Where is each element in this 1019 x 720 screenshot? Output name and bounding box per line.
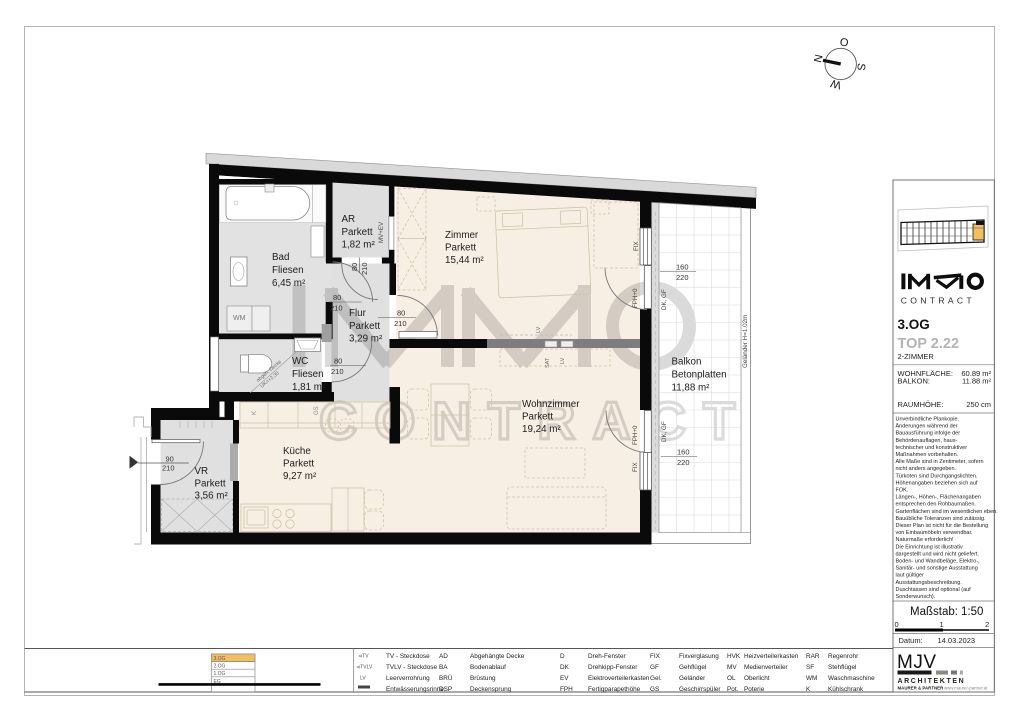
svg-text:1.OG: 1.OG xyxy=(214,671,226,677)
svg-text:Pot.: Pot. xyxy=(727,686,739,693)
svg-text:AD: AD xyxy=(439,653,448,660)
svg-text:LV: LV xyxy=(360,676,366,682)
svg-text:Bodenablauf: Bodenablauf xyxy=(470,664,506,671)
svg-text:SF: SF xyxy=(806,664,814,671)
svg-text:WM: WM xyxy=(806,675,817,682)
svg-text:220: 220 xyxy=(676,273,689,282)
svg-text:MAURER & PARTNER: MAURER & PARTNER xyxy=(898,686,945,691)
svg-text:TVLV - Steckdose: TVLV - Steckdose xyxy=(386,664,437,671)
svg-text:entsprechen den Rohbaumaßen.: entsprechen den Rohbaumaßen. xyxy=(896,502,977,508)
svg-text:Dieser Plan ist nicht für die: Dieser Plan ist nicht für die Bestellung xyxy=(896,523,989,529)
svg-text:⊲TVLV: ⊲TVLV xyxy=(356,665,373,671)
svg-text:Bauübliche Toleranzen sind zul: Bauübliche Toleranzen sind zulässig. xyxy=(896,516,987,522)
svg-text:Poterie: Poterie xyxy=(744,686,765,693)
svg-text:250 cm: 250 cm xyxy=(966,400,991,409)
svg-text:DK: DK xyxy=(560,664,570,671)
svg-text:11.88 m²: 11.88 m² xyxy=(962,377,992,386)
svg-text:210: 210 xyxy=(360,262,369,275)
svg-text:Regenrohr: Regenrohr xyxy=(828,653,859,660)
svg-text:GS: GS xyxy=(314,406,320,415)
svg-text:DSP: DSP xyxy=(439,686,452,693)
svg-text:Bauausführung infolge der: Bauausführung infolge der xyxy=(896,431,961,437)
svg-text:Heizverteilerkasten: Heizverteilerkasten xyxy=(744,653,799,660)
svg-text:LV: LV xyxy=(560,357,566,364)
svg-text:Fertigparapethöhe: Fertigparapethöhe xyxy=(588,686,641,693)
svg-text:Wohnzimmer: Wohnzimmer xyxy=(522,399,580,410)
svg-text:Sanitär- und sonstige Ausstatt: Sanitär- und sonstige Ausstattung xyxy=(896,566,978,572)
svg-text:210: 210 xyxy=(394,319,407,328)
svg-text:Dreh-Fenster: Dreh-Fenster xyxy=(588,653,627,660)
svg-text:2-ZIMMER: 2-ZIMMER xyxy=(898,352,935,361)
svg-text:FPH: FPH xyxy=(560,686,573,693)
svg-text:Waschmaschine: Waschmaschine xyxy=(828,675,875,682)
svg-text:MV: MV xyxy=(727,664,737,671)
svg-text:MJV: MJV xyxy=(897,652,937,673)
svg-text:Betonplatten: Betonplatten xyxy=(672,370,727,381)
svg-text:Parkett: Parkett xyxy=(522,412,553,423)
svg-text:Parkett: Parkett xyxy=(283,459,314,470)
svg-text:Längen-, Höhen-, Flächenangabe: Längen-, Höhen-, Flächenangaben xyxy=(896,495,981,501)
svg-text:90: 90 xyxy=(166,455,174,464)
svg-text:Fliesen: Fliesen xyxy=(272,265,304,276)
svg-text:3.OG: 3.OG xyxy=(214,656,226,662)
svg-text:Maßstab:: Maßstab: xyxy=(910,606,958,618)
svg-text:Stehflügel: Stehflügel xyxy=(828,664,856,671)
svg-text:1,82 m²: 1,82 m² xyxy=(342,240,376,251)
svg-text:210: 210 xyxy=(162,464,175,473)
svg-text:9,27 m²: 9,27 m² xyxy=(283,471,317,482)
svg-text:Parkett: Parkett xyxy=(342,227,373,238)
svg-text:80: 80 xyxy=(333,293,341,302)
svg-text:laut gültiger: laut gültiger xyxy=(896,573,925,579)
svg-text:BA: BA xyxy=(439,664,448,671)
svg-text:1,81 m²: 1,81 m² xyxy=(292,382,326,393)
svg-text:Sonderwunsch).: Sonderwunsch). xyxy=(896,594,936,600)
svg-text:Maßnahmen vorbehalten.: Maßnahmen vorbehalten. xyxy=(896,452,959,458)
svg-text:Oberlicht: Oberlicht xyxy=(744,675,770,682)
svg-text:WC: WC xyxy=(292,356,308,367)
svg-text:LV: LV xyxy=(536,326,542,333)
svg-text:11,88 m²: 11,88 m² xyxy=(672,383,711,394)
svg-text:2.OG: 2.OG xyxy=(214,664,226,670)
svg-text:Zimmer: Zimmer xyxy=(445,230,479,241)
svg-text:Geschirrspüler: Geschirrspüler xyxy=(679,686,721,693)
svg-text:Abgehängte Decke: Abgehängte Decke xyxy=(470,653,525,660)
svg-text:Geländer H=1.02m: Geländer H=1.02m xyxy=(742,315,749,368)
svg-text:3,29 m²: 3,29 m² xyxy=(349,334,383,345)
svg-text:K: K xyxy=(252,411,258,415)
svg-text:GF: GF xyxy=(650,664,659,671)
svg-text:FOK.: FOK. xyxy=(896,488,909,494)
svg-text:ARCHITEKTEN: ARCHITEKTEN xyxy=(898,678,966,685)
svg-text:Drehkipp-Fenster: Drehkipp-Fenster xyxy=(588,664,638,671)
svg-text:6,45 m²: 6,45 m² xyxy=(272,278,306,289)
svg-text:BALKON:: BALKON: xyxy=(898,377,931,386)
svg-text:Parkett: Parkett xyxy=(195,479,226,490)
svg-text:Parkett: Parkett xyxy=(349,321,380,332)
svg-text:15,44 m²: 15,44 m² xyxy=(445,255,484,266)
svg-text:Parkett: Parkett xyxy=(445,243,476,254)
svg-text:80: 80 xyxy=(350,263,359,271)
svg-text:RAUMHÖHE:: RAUMHÖHE: xyxy=(898,400,944,409)
svg-text:FIX: FIX xyxy=(650,653,661,660)
svg-text:Bad: Bad xyxy=(272,252,289,263)
svg-text:CONTRACT: CONTRACT xyxy=(901,296,975,306)
svg-text:3.OG: 3.OG xyxy=(898,317,930,332)
svg-text:Gartenflächen sind im wesentli: Gartenflächen sind im wesentlichen eben. xyxy=(896,509,999,515)
svg-text:Medienverteiler: Medienverteiler xyxy=(744,664,789,671)
svg-text:Behördenauflagen, haus-: Behördenauflagen, haus- xyxy=(896,438,958,444)
svg-text:WM: WM xyxy=(233,315,246,322)
svg-text:14.03.2023: 14.03.2023 xyxy=(938,636,976,645)
svg-text:EV: EV xyxy=(560,675,569,682)
svg-text:Gehflügel: Gehflügel xyxy=(679,664,706,671)
svg-text:TV - Steckdose: TV - Steckdose xyxy=(386,653,430,660)
svg-text:nicht anders angegeben.: nicht anders angegeben. xyxy=(896,466,957,472)
svg-text:AR: AR xyxy=(342,214,356,225)
svg-text:Die Einrichtung ist illustrati: Die Einrichtung ist illustrativ xyxy=(896,544,963,550)
svg-text:Fliesen: Fliesen xyxy=(292,369,324,380)
svg-text:1:50: 1:50 xyxy=(961,606,983,618)
svg-text:Deckensprung: Deckensprung xyxy=(470,686,512,693)
svg-text:Küche: Küche xyxy=(283,446,311,457)
svg-text:Naturmaße erforderlich!: Naturmaße erforderlich! xyxy=(896,537,955,543)
svg-text:Leerverrohrung: Leerverrohrung xyxy=(386,675,430,682)
svg-text:Höhenangaben beziehen sich auf: Höhenangaben beziehen sich auf xyxy=(896,480,978,486)
svg-text:RAR: RAR xyxy=(806,653,820,660)
svg-text:Datum:: Datum: xyxy=(899,636,923,645)
svg-text:TOP 2.22: TOP 2.22 xyxy=(898,336,960,352)
svg-text:Fixverglasung: Fixverglasung xyxy=(679,653,719,660)
svg-text:HVK: HVK xyxy=(727,653,741,660)
svg-text:Brüstung: Brüstung xyxy=(470,675,496,682)
svg-text:Flur: Flur xyxy=(349,308,367,319)
svg-text:80: 80 xyxy=(334,357,342,366)
svg-text:160: 160 xyxy=(677,448,690,457)
svg-text:S: S xyxy=(854,62,867,71)
svg-text:BRÜ: BRÜ xyxy=(439,674,453,682)
svg-text:OL: OL xyxy=(727,675,736,682)
svg-text:19,24 m²: 19,24 m² xyxy=(522,424,561,435)
svg-text:FIX: FIX xyxy=(632,462,639,472)
svg-text:0: 0 xyxy=(895,620,899,629)
svg-text:210: 210 xyxy=(330,304,343,313)
svg-text:dargestellt und wird nicht gel: dargestellt und wird nicht geliefert. xyxy=(896,551,980,557)
svg-text:Entwässerungsrinne: Entwässerungsrinne xyxy=(386,686,444,693)
svg-text:von Einbaumöbeln verwendbar.: von Einbaumöbeln verwendbar. xyxy=(896,530,974,536)
svg-text:D: D xyxy=(560,653,565,660)
svg-text:80: 80 xyxy=(397,309,405,318)
svg-text:2: 2 xyxy=(985,620,989,629)
svg-text:www.maurer-partner.at: www.maurer-partner.at xyxy=(944,686,988,691)
svg-text:GS: GS xyxy=(650,686,659,693)
svg-text:Alle Maße sind in Zentimeter,: Alle Maße sind in Zentimeter, sofern xyxy=(896,459,984,465)
svg-text:Ausstattungsbeschreibung.: Ausstattungsbeschreibung. xyxy=(896,580,963,586)
svg-text:Elektroverteilerkasten: Elektroverteilerkasten xyxy=(588,675,650,682)
svg-text:Türkoten sind Durchgangslichte: Türkoten sind Durchgangslichten. xyxy=(896,473,978,479)
svg-text:VR: VR xyxy=(195,466,209,477)
svg-text:1: 1 xyxy=(940,620,944,629)
svg-text:220: 220 xyxy=(677,458,690,467)
svg-text:K: K xyxy=(806,686,811,693)
svg-text:SAT: SAT xyxy=(545,357,551,368)
svg-text:Kühlschrank: Kühlschrank xyxy=(828,686,864,693)
svg-text:Geländer: Geländer xyxy=(679,675,706,682)
svg-text:FIX: FIX xyxy=(633,241,640,251)
svg-text:3,56 m²: 3,56 m² xyxy=(195,491,229,502)
svg-text:Gel.: Gel. xyxy=(650,675,662,682)
svg-text:Duschtassen sind optional (auf: Duschtassen sind optional (auf xyxy=(896,587,972,593)
svg-text:technischer und konstruktiver: technischer und konstruktiver xyxy=(896,445,968,451)
svg-text:Boden- und Wandbeläge, Elektro: Boden- und Wandbeläge, Elektro-, xyxy=(896,559,981,565)
svg-text:FPH+0: FPH+0 xyxy=(632,288,639,308)
svg-text:Balkon: Balkon xyxy=(672,357,702,368)
svg-text:DK, GF: DK, GF xyxy=(661,421,668,442)
svg-text:160: 160 xyxy=(676,263,689,272)
svg-text:Unverbindliche Plankopie.: Unverbindliche Plankopie. xyxy=(896,417,960,423)
svg-text:210: 210 xyxy=(331,367,344,376)
svg-text:Änderungen während der: Änderungen während der xyxy=(896,423,958,430)
svg-text:DK, GF: DK, GF xyxy=(661,289,668,310)
svg-text:FPH+0: FPH+0 xyxy=(632,425,639,445)
svg-text:⊲TV: ⊲TV xyxy=(358,654,369,660)
svg-text:MV+EV: MV+EV xyxy=(378,221,385,243)
